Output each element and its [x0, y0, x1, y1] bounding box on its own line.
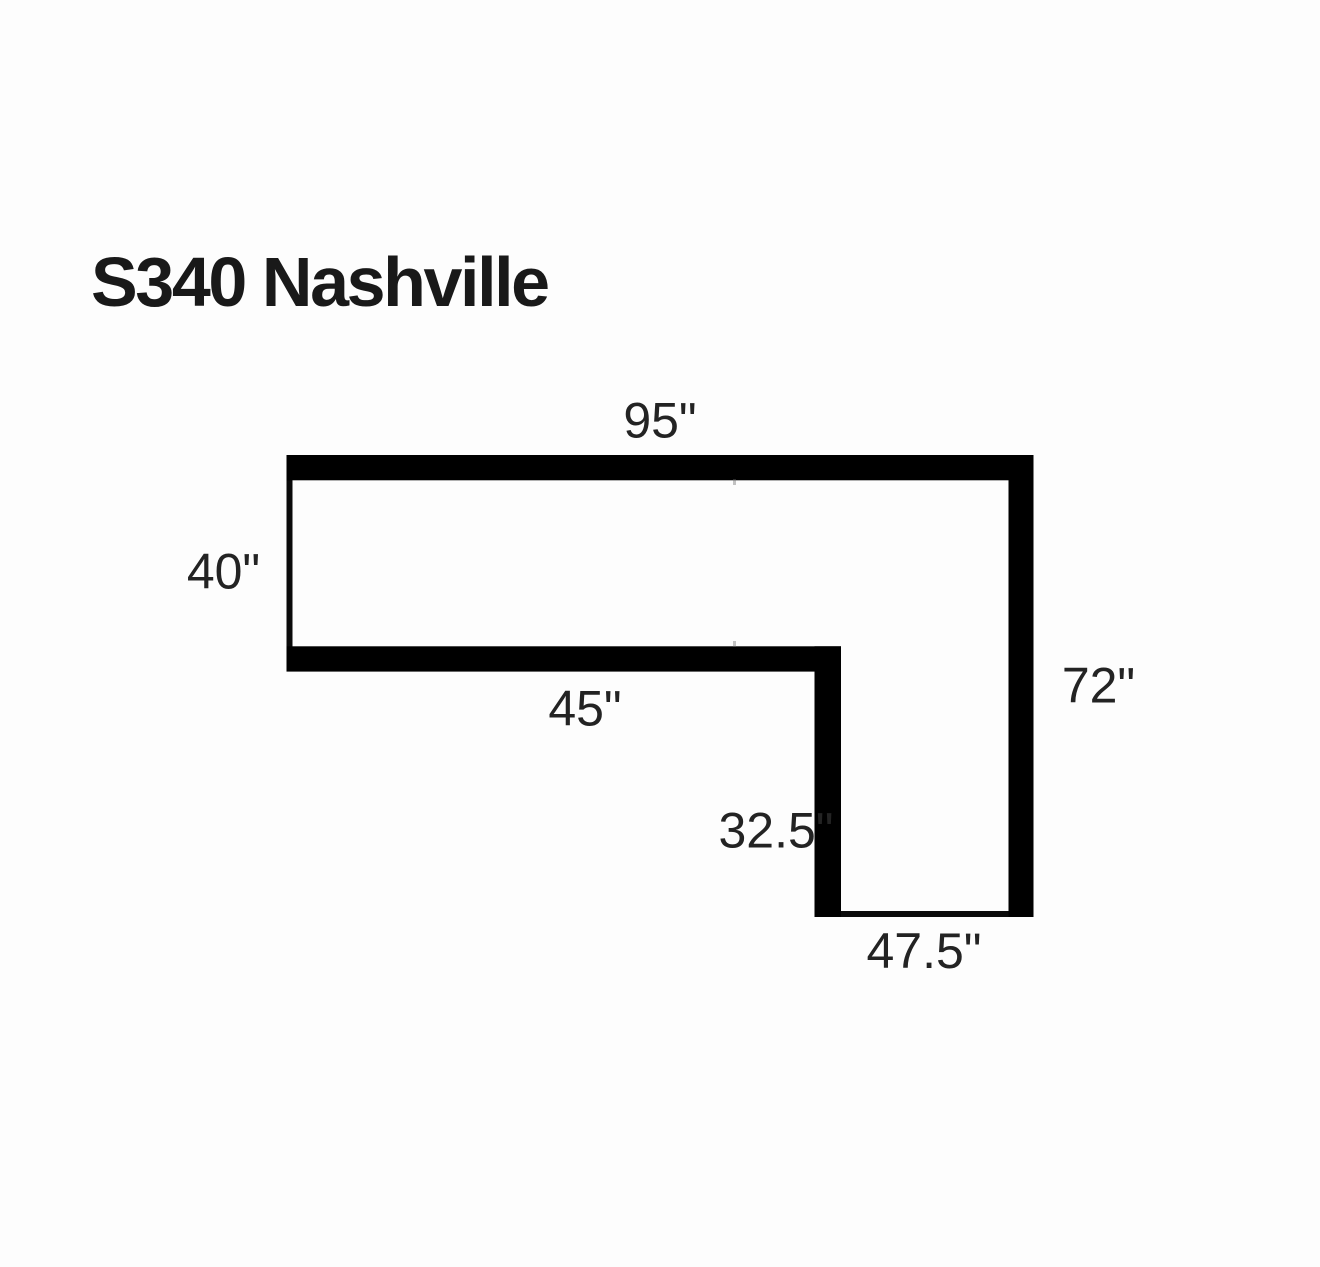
- svg-text:45": 45": [548, 681, 621, 737]
- svg-text:95": 95": [623, 393, 696, 449]
- svg-text:72": 72": [1062, 658, 1135, 714]
- svg-text:40": 40": [187, 544, 260, 600]
- svg-text:32.5": 32.5": [718, 803, 833, 859]
- svg-text:47.5": 47.5": [866, 923, 981, 979]
